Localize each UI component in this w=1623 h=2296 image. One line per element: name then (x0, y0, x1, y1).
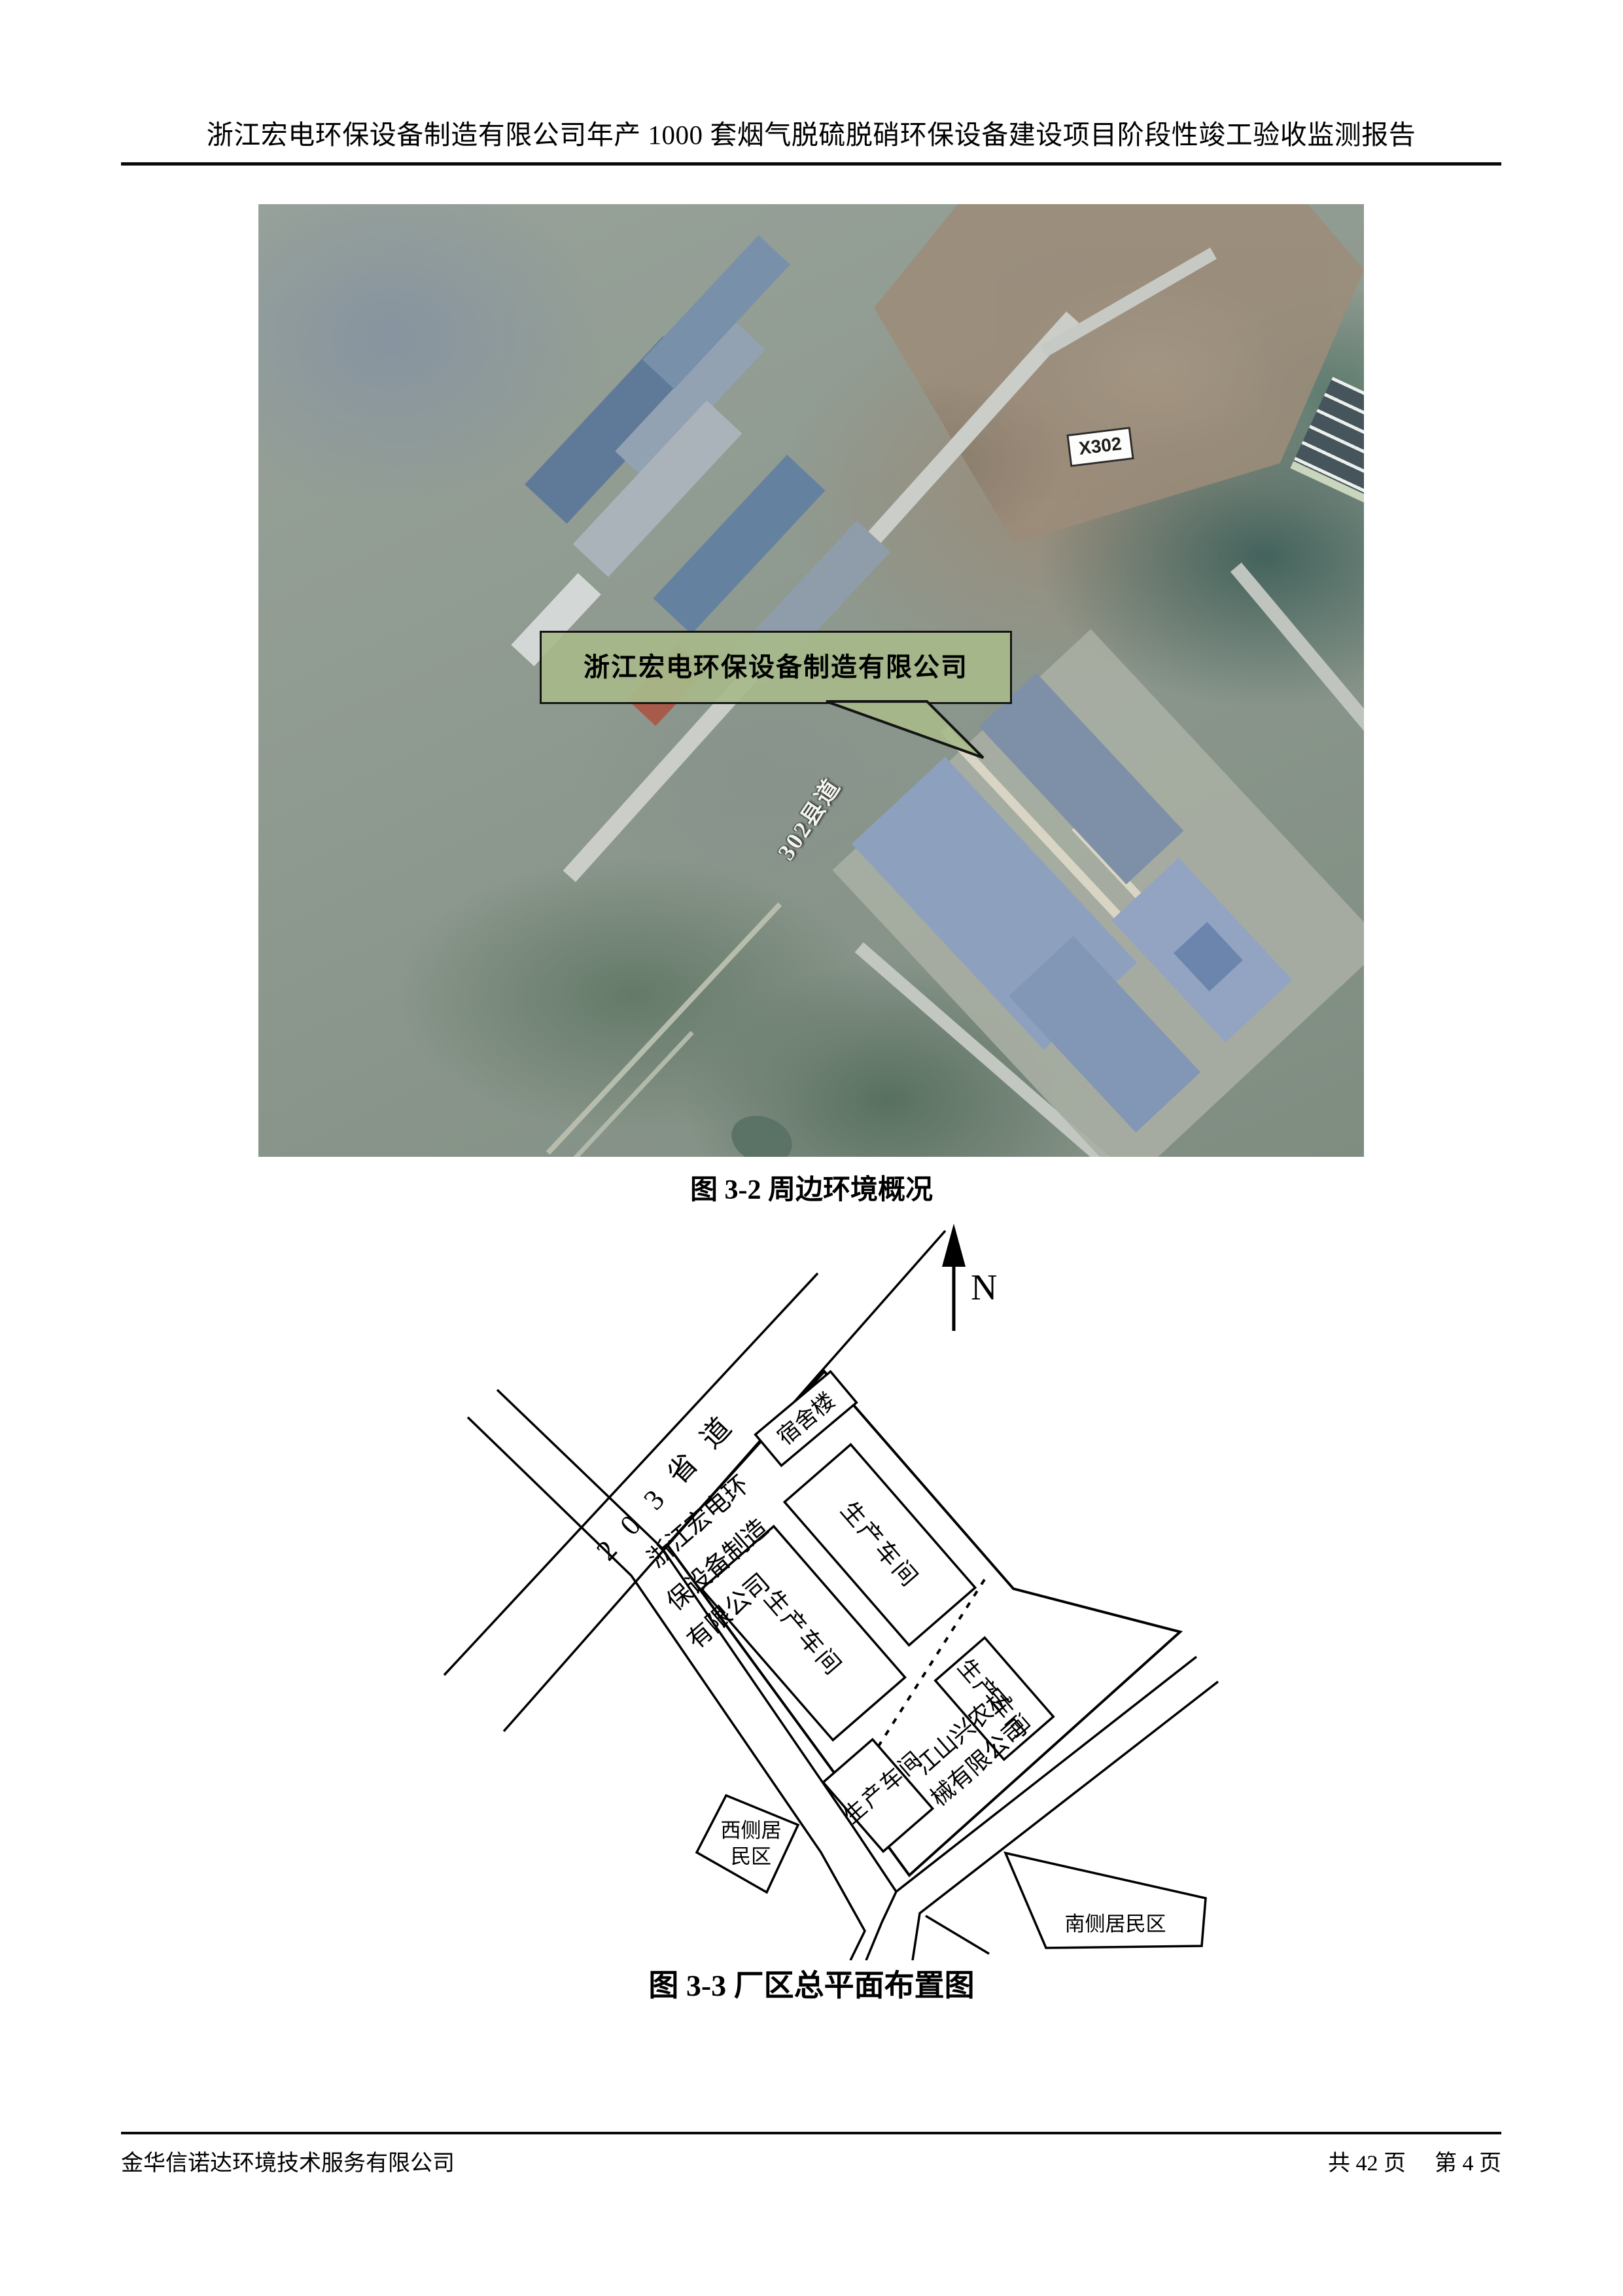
site-plan-figure: N 2 0 3 省 道 浙江宏电环 保设备制造 有限公司 宿舍楼 生产车间 生产… (393, 1214, 1243, 1960)
map-callout-company: 浙江宏电环保设备制造有限公司 (540, 631, 1012, 704)
road-branch-edge (926, 1916, 989, 1954)
west-residential-line2: 民区 (731, 1845, 771, 1868)
north-arrow-head (942, 1224, 966, 1267)
footer-company: 金华信诺达环境技术服务有限公司 (121, 2145, 455, 2177)
west-residential-line1: 西侧居 (721, 1819, 782, 1842)
west-residential-area (697, 1795, 798, 1892)
footer: 金华信诺达环境技术服务有限公司 共 42 页第 4 页 (121, 2145, 1501, 2177)
map-callout-pointer (814, 700, 1011, 766)
footer-divider (121, 2132, 1501, 2134)
road-south-edge (866, 1892, 896, 1960)
page: { "header": { "title": "浙江宏电环保设备制造有限公司年产… (0, 0, 1623, 2296)
satellite-map-figure: X302 302县道 浙江宏电环保设备制造有限公司 (258, 204, 1364, 1157)
footer-pages-total: 共 42 页 (1328, 2151, 1406, 2176)
caption-fig-3-3: 图 3-3 厂区总平面布置图 (0, 1962, 1623, 2005)
footer-pagination: 共 42 页第 4 页 (1328, 2145, 1501, 2177)
north-arrow: N (942, 1224, 997, 1331)
south-residential-label: 南侧居民区 (1065, 1913, 1166, 1935)
north-label: N (971, 1267, 997, 1308)
road-east-edge (896, 1657, 1196, 1892)
map-callout-pointer-shape (826, 701, 983, 758)
page-header-title: 浙江宏电环保设备制造有限公司年产 1000 套烟气脱硫脱硝环保设备建设项目阶段性… (121, 113, 1501, 166)
caption-fig-3-2: 图 3-2 周边环境概况 (0, 1167, 1623, 1207)
footer-page-current: 第 4 页 (1435, 2151, 1501, 2176)
